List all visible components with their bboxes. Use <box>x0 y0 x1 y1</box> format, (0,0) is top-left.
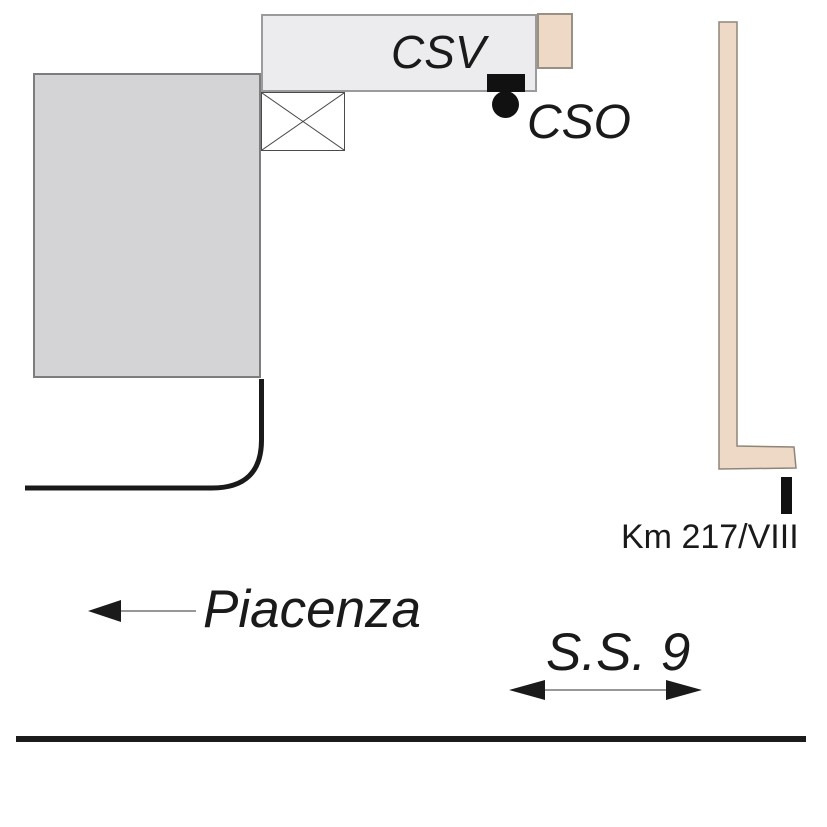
csv-station-marker <box>487 74 525 92</box>
kerb-curve-line <box>25 379 262 488</box>
cso-label: CSO <box>527 99 631 147</box>
road-edge-line <box>16 736 806 742</box>
cso-station-marker <box>492 91 519 118</box>
hatch-x-icon <box>262 93 344 150</box>
km-tick-marker <box>781 477 792 514</box>
road-strip <box>719 22 796 469</box>
hatched-box <box>261 92 345 151</box>
piacenza-direction-label: Piacenza <box>203 583 421 636</box>
km-marker-label: Km 217/VIII <box>621 520 799 554</box>
csv-label: CSV <box>391 29 486 75</box>
road-name-label: S.S. 9 <box>546 626 690 679</box>
piacenza-arrow-icon <box>88 600 196 622</box>
large-building-block <box>33 73 261 378</box>
site-plan-diagram: CSV CSO Km 217/VIII Piacenza S.S. 9 <box>0 0 827 827</box>
annex-block <box>537 13 573 69</box>
ss9-double-arrow-icon <box>509 680 702 700</box>
